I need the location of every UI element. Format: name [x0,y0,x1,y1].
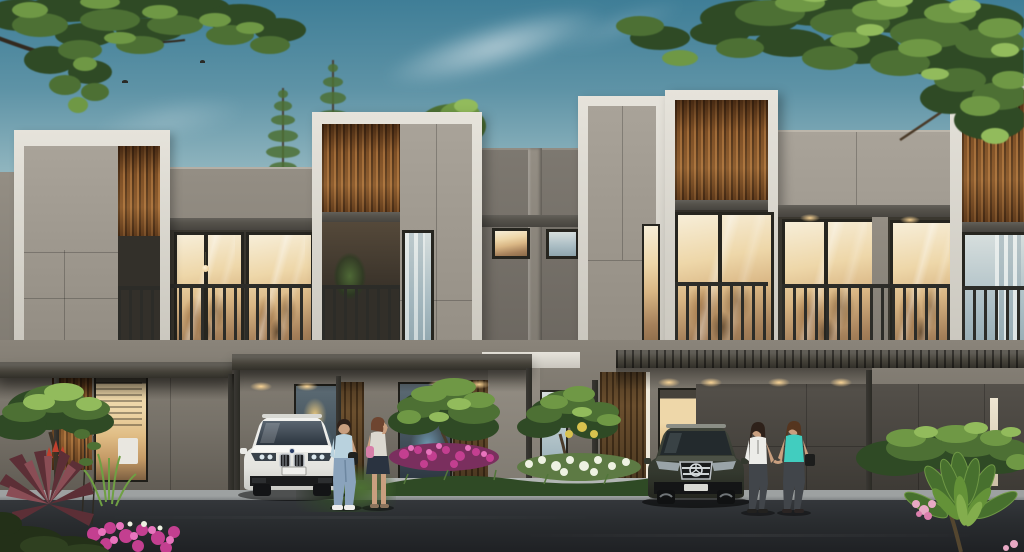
corner-garden-right [856,410,1024,552]
downlight-glow [768,378,790,387]
pendant-cord [205,252,206,266]
downlight-glow [296,382,318,391]
balcony-fascia [675,200,768,210]
panel-seam [24,298,118,299]
pilaster [528,148,542,362]
fascia-band [962,222,1024,232]
carport-canopy [616,350,872,368]
downlight-glow [800,214,820,222]
woman-skirt [366,417,390,508]
carport-canopy [872,350,1024,368]
two-women-standing [326,416,402,512]
downlight-glow [900,216,920,224]
woman-jeans [330,419,358,510]
woman-white-tee [745,422,774,513]
overhanging-tree-right [600,0,1024,200]
clerestory-window [546,229,579,259]
garden-island [384,372,652,496]
downlight-glow [830,378,852,387]
slot-window [642,224,660,348]
two-women-walking [736,420,820,516]
panel-seam [24,252,118,253]
fascia-band [164,218,316,230]
wood-slat-panel [118,146,160,236]
stair-window [402,230,434,350]
downlight-glow [700,378,722,387]
panel-seam [436,124,437,364]
held-hands [774,461,782,463]
downlight-glow [250,382,272,391]
pendant-lamp [202,265,209,272]
woman-teal-top [778,421,815,513]
fascia-band [482,215,580,227]
panel-seam [64,250,65,344]
overhanging-tree-left [0,0,330,150]
downlight-glow [658,378,680,387]
architectural-render-scene [0,0,1024,552]
facade-panel [24,146,118,344]
carport-canopy [232,354,532,370]
corner-garden-left [0,374,244,552]
balcony-fascia [322,212,400,222]
clerestory-window [492,228,530,259]
wood-slat-panel [322,124,400,214]
